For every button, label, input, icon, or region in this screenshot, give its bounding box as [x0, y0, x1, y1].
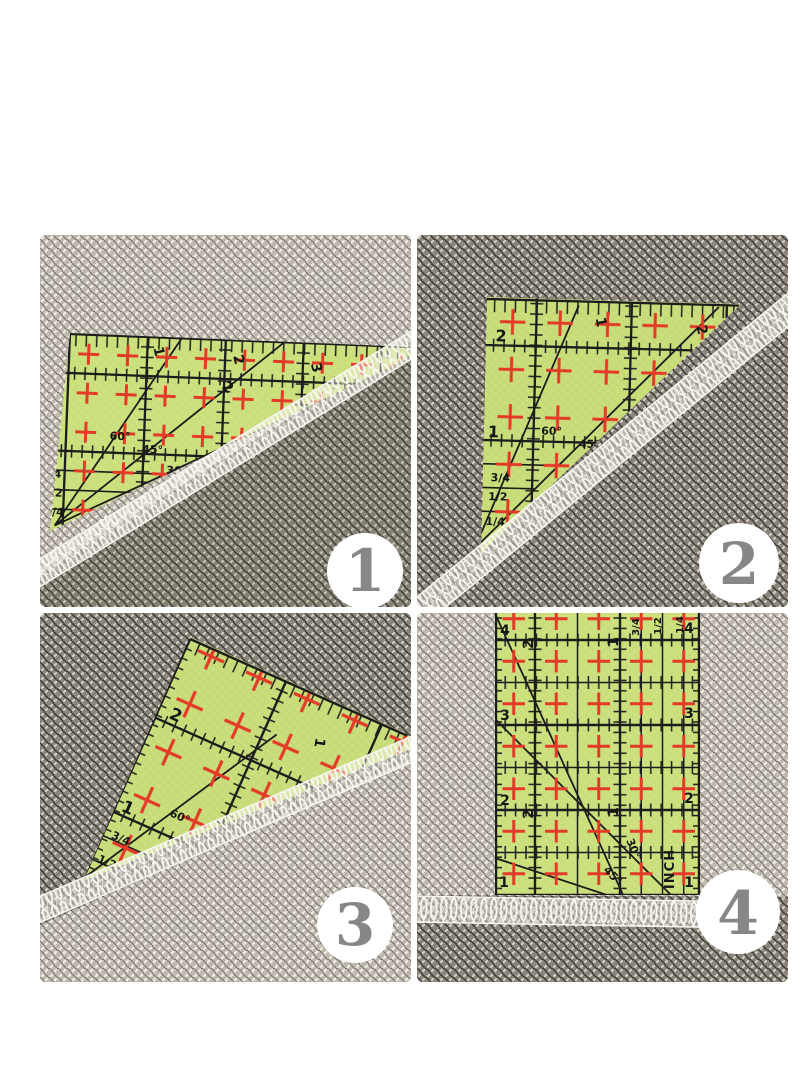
ruler-scale-label: 1/2 — [653, 617, 664, 635]
photo-panel-1: 2 1 3/4 1/2 1/4 1 2 3 2 60° 45° 30° 1 — [40, 235, 411, 607]
step-badge: 4 — [696, 870, 780, 954]
step-badge: 1 — [327, 533, 403, 607]
ruler-scale-label: 1/2 — [488, 490, 508, 504]
ruler-grid: 4 3 2 1 4 3 2 1 2 1 2 1 3/4 1/2 1/4 45° … — [490, 613, 705, 897]
ruler-scale-label: 1/4 — [675, 616, 686, 634]
ruler-angle-label: 45° — [142, 443, 163, 457]
step-badge-number: 3 — [335, 891, 375, 959]
photo-collage: 2 1 3/4 1/2 1/4 1 2 3 2 60° 45° 30° 1 — [0, 0, 800, 1091]
step-badge-number: 2 — [719, 530, 759, 598]
step-badge: 2 — [699, 523, 779, 603]
ruler-scale-label: 2 — [521, 639, 537, 649]
ruler-scale-label: 3 — [500, 708, 510, 724]
ruler-angle-label: 60° — [109, 430, 130, 444]
ruler-scale-label: 1 — [499, 875, 509, 891]
ruler-scale-label: 1 — [606, 807, 622, 817]
photo-panel-4: 4 3 2 1 4 3 2 1 2 1 2 1 3/4 1/2 1/4 45° … — [417, 613, 788, 982]
ruler-scale-label: 3/4 — [631, 618, 642, 636]
step-badge-number: 4 — [717, 879, 759, 949]
photo-panel-2: 2 1 3/4 1/2 1/4 1 2 2 60° 45° 2 — [417, 235, 788, 607]
photo-panel-3: 2 1 3/4 1/2 1 60° 3 — [40, 613, 411, 982]
ruler-inch-label: INCH — [663, 849, 678, 889]
step-badge: 3 — [317, 887, 393, 963]
panel-2-photo: 2 1 3/4 1/2 1/4 1 2 2 60° 45° 2 — [417, 235, 788, 607]
panel-1-photo: 2 1 3/4 1/2 1/4 1 2 3 2 60° 45° 30° 1 — [40, 235, 411, 607]
quilting-ruler: 4 3 2 1 4 3 2 1 2 1 2 1 3/4 1/2 1/4 45° … — [490, 613, 705, 897]
step-badge-number: 1 — [345, 537, 385, 605]
ruler-scale-label: 3 — [684, 706, 694, 722]
ruler-scale-label: 2 — [521, 809, 537, 819]
panel-3-photo: 2 1 3/4 1/2 1 60° 3 — [40, 613, 411, 982]
ruler-scale-label: 2 — [495, 326, 507, 345]
serged-fabric-edge — [417, 896, 744, 928]
ruler-scale-label: 2 — [500, 793, 510, 809]
ruler-scale-label: 1 — [684, 875, 694, 891]
ruler-scale-label: 1 — [606, 637, 622, 647]
panel-4-photo: 4 3 2 1 4 3 2 1 2 1 2 1 3/4 1/2 1/4 45° … — [417, 613, 788, 982]
ruler-scale-label: 2 — [684, 791, 694, 807]
ruler-angle-label: 60° — [541, 424, 562, 438]
ruler-scale-label: 3/4 — [490, 471, 510, 485]
ruler-scale-label: 4 — [500, 623, 510, 639]
ruler-scale-label: 1 — [488, 422, 500, 441]
